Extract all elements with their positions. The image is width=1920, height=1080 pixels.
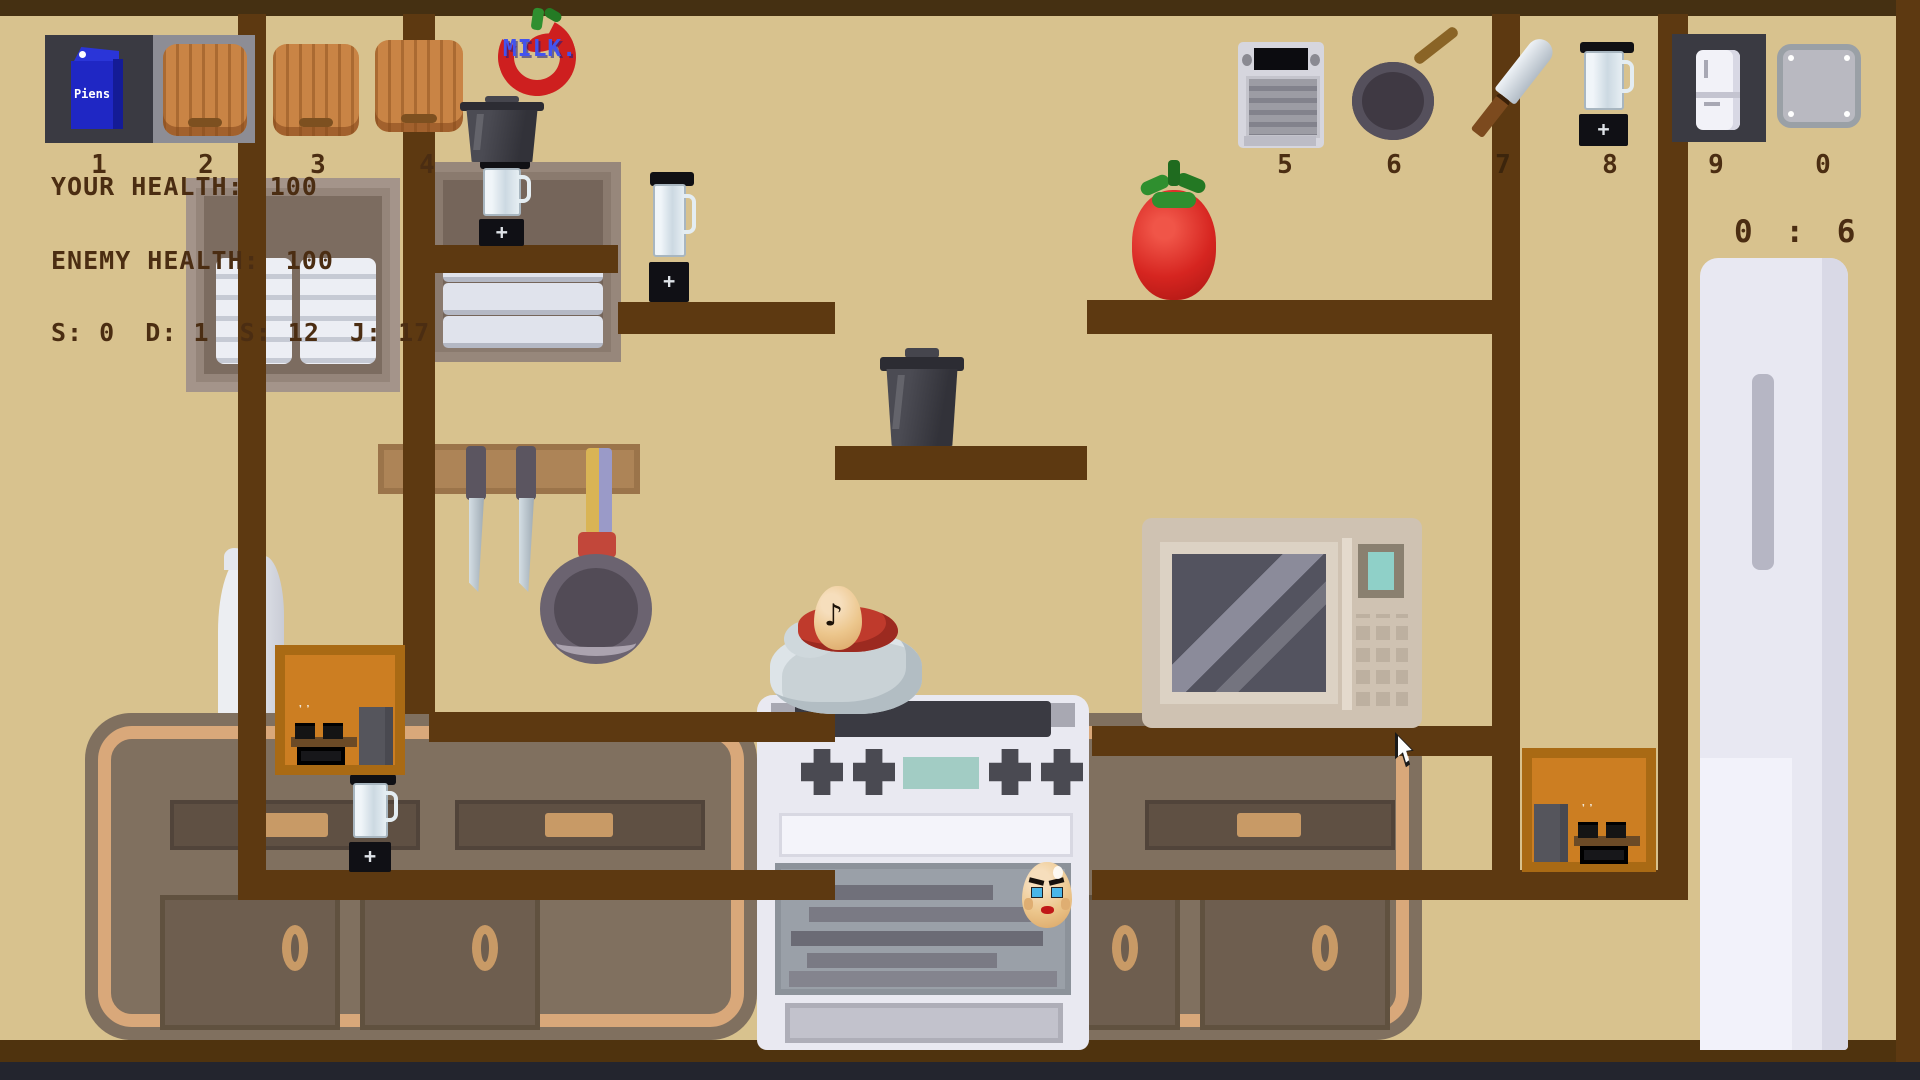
blender: [478, 160, 532, 246]
tomato: [1130, 160, 1218, 300]
knife-handle: [516, 446, 536, 500]
cabinet-door: [1200, 895, 1390, 1030]
enemy-cheek: [1024, 898, 1033, 910]
enemy-eye: [1051, 887, 1063, 898]
enemy-eye: [1031, 887, 1043, 898]
pan-rim-highlight: [556, 630, 636, 656]
pot-body: [465, 110, 539, 162]
cutting-board-icon: [163, 44, 247, 136]
microwave-display-screen: [1368, 552, 1394, 590]
mini-pot: [1606, 822, 1626, 838]
stove-knob: [1041, 749, 1083, 795]
fridge-shade-low: [1700, 758, 1792, 1050]
tomato-leaf: [1152, 192, 1196, 208]
blender-jar: [353, 783, 388, 838]
fridge-icon-seam: [1696, 92, 1740, 98]
enemy-lips: [1041, 906, 1054, 914]
platform: [618, 302, 835, 334]
slot-number-8: 8: [1588, 150, 1632, 180]
drawer-handle: [545, 813, 613, 837]
platform: [428, 245, 618, 273]
blender: [348, 774, 398, 872]
door-handle-ring: [472, 925, 498, 971]
steam: ❜❜: [1580, 802, 1595, 815]
knife-blade: [519, 498, 534, 592]
oven-screw: [1242, 54, 1252, 66]
mini-pot: [323, 723, 343, 739]
slot-number-9: 9: [1694, 150, 1738, 180]
hanging-knife: [466, 446, 488, 596]
mini-oven: [297, 747, 345, 765]
your-health: YOUR HEALTH: 100: [51, 172, 318, 201]
stat-key: S:: [51, 318, 83, 347]
stove-knob: [989, 749, 1031, 795]
platform: [1092, 870, 1688, 900]
knife-blade: [469, 498, 484, 592]
toaster-oven-icon[interactable]: [1238, 42, 1324, 148]
hanging-knife: [516, 446, 538, 596]
carton-dot: [79, 51, 86, 58]
slot-number-5: 5: [1263, 150, 1307, 180]
enemy-shine: [1053, 866, 1063, 879]
window-border-bottom: [0, 1062, 1920, 1080]
blender: [648, 172, 696, 302]
timer-seconds: 6: [1837, 214, 1857, 250]
mini-kitchen-box: ❜❜: [275, 645, 405, 775]
oven-display: [1254, 48, 1308, 70]
your-health-value: 100: [270, 172, 318, 201]
platform: [1092, 726, 1492, 756]
blender-base: [1579, 114, 1628, 146]
drawer-handle: [260, 813, 328, 837]
platform: [238, 14, 266, 900]
mini-pot: [295, 723, 315, 739]
refrigerator: [1700, 258, 1848, 1050]
enemy-eyebrow: [1029, 877, 1045, 885]
timer: 0 : 6: [1734, 214, 1856, 250]
platform: [238, 870, 835, 900]
blender-jar: [483, 168, 521, 216]
cleaver-icon[interactable]: [1462, 30, 1558, 150]
stat-key: D:: [145, 318, 177, 347]
slot-number-4: 4: [405, 150, 449, 180]
cutting-board-icon: [273, 44, 359, 136]
slot-number-0: 0: [1801, 150, 1845, 180]
timer-minutes: 0: [1734, 214, 1754, 250]
pan-handle: [1412, 25, 1460, 66]
platform-right-wall: [1896, 0, 1920, 1062]
platform: [1658, 14, 1688, 900]
tray-rivet: [1844, 111, 1850, 117]
fridge-icon-handle: [1704, 102, 1720, 106]
tray-rivet: [1844, 55, 1850, 61]
slot-number-6: 6: [1372, 150, 1416, 180]
carton-side: [113, 59, 123, 129]
steam: ❜❜: [297, 703, 312, 716]
tray-rivet: [1788, 111, 1794, 117]
oven-screw: [1310, 54, 1320, 66]
platform-top-bar: [0, 0, 1920, 16]
mini-fridge: [359, 707, 393, 765]
pot-lid: [880, 357, 964, 371]
logo-text: MILK.: [488, 36, 592, 62]
mouse-cursor: [1395, 732, 1421, 768]
platform: [429, 712, 835, 742]
cutting-board-icon: [375, 40, 463, 132]
oven-rack: [807, 953, 997, 968]
plate: [443, 283, 603, 315]
enemy-character: [1022, 862, 1072, 928]
stat-value: 17: [398, 318, 430, 347]
fridge-shade: [1822, 258, 1848, 1050]
stove-knob: [853, 749, 895, 795]
oven-rack: [789, 971, 1057, 987]
hanging-pan: [540, 554, 652, 664]
stove-drawer: [785, 1003, 1063, 1043]
blender-base: [349, 842, 391, 872]
door-handle-ring: [1112, 925, 1138, 971]
blender-base: [479, 219, 524, 246]
stat-key: J:: [350, 318, 382, 347]
knife-handle: [466, 446, 486, 500]
music-note-icon: ♪: [824, 596, 843, 634]
blender-base: [649, 262, 689, 302]
hanging-pan-handle: [586, 448, 612, 534]
enemy-health-value: 100: [286, 246, 334, 275]
microwave: [1142, 518, 1422, 728]
game-screen: Piens: [0, 0, 1920, 1080]
blender-icon[interactable]: [1578, 42, 1636, 146]
cleaver-handle: [1471, 93, 1511, 138]
stat-value: 0: [99, 318, 115, 347]
frying-pan-icon[interactable]: [1348, 34, 1460, 150]
cabinet-door: [160, 895, 340, 1030]
microwave-window: [1172, 554, 1326, 692]
blender-jar: [1584, 51, 1625, 109]
oven-handle: [779, 813, 1073, 857]
drawer-handle: [1237, 813, 1301, 837]
blender-jar: [653, 184, 687, 257]
hotbar-slot-1[interactable]: Piens: [45, 35, 153, 143]
enemy-health-label: ENEMY HEALTH:: [51, 246, 260, 275]
player-character: ♪: [770, 586, 926, 716]
stat-key: S:: [240, 318, 272, 347]
stat-value: 12: [288, 318, 320, 347]
fridge-icon-handle: [1704, 60, 1708, 78]
oven-base: [1244, 136, 1316, 146]
stats-line: S: 0 D: 1 S: 12 J: 17: [51, 318, 430, 347]
enemy-health: ENEMY HEALTH: 100: [51, 246, 334, 275]
mini-oven: [1580, 846, 1628, 864]
mini-fridge: [1534, 804, 1568, 862]
oven-door: [1246, 76, 1320, 138]
pot-body: [885, 369, 959, 446]
stat-value: 1: [193, 318, 209, 347]
mini-pot: [1578, 822, 1598, 838]
microwave-buttons: [1356, 614, 1408, 706]
tray-icon[interactable]: [1777, 44, 1861, 128]
platform: [1087, 300, 1492, 334]
fridge-handle: [1752, 374, 1774, 570]
door-handle-ring: [282, 925, 308, 971]
oven-rack: [809, 907, 1039, 922]
oven-rack: [791, 931, 1043, 946]
milk-carton-icon: Piens: [71, 47, 123, 131]
slot-number-7: 7: [1481, 150, 1525, 180]
tomato-stem: [1168, 160, 1180, 186]
fridge-icon: [1696, 50, 1740, 130]
game-logo: MILK.: [492, 8, 592, 108]
hotbar-slot-9[interactable]: [1672, 34, 1766, 142]
plate: [443, 316, 603, 348]
microwave-divider: [1342, 538, 1352, 710]
cabinet-door: [360, 895, 540, 1030]
cooking-pot: [880, 348, 964, 446]
player-egg: ♪: [814, 586, 862, 650]
door-handle-ring: [1312, 925, 1338, 971]
cleaver-blade: [1494, 34, 1558, 105]
stove-knob: [801, 749, 843, 795]
pan-body: [1352, 62, 1434, 140]
tray-rivet: [1788, 55, 1794, 61]
your-health-label: YOUR HEALTH:: [51, 172, 244, 201]
carton-label: Piens: [71, 87, 113, 101]
platform: [835, 446, 1087, 480]
enemy-cheek: [1061, 898, 1070, 910]
stove-display: [903, 757, 979, 789]
mini-kitchen-box: ❜❜: [1522, 748, 1656, 872]
timer-separator: :: [1785, 214, 1805, 250]
